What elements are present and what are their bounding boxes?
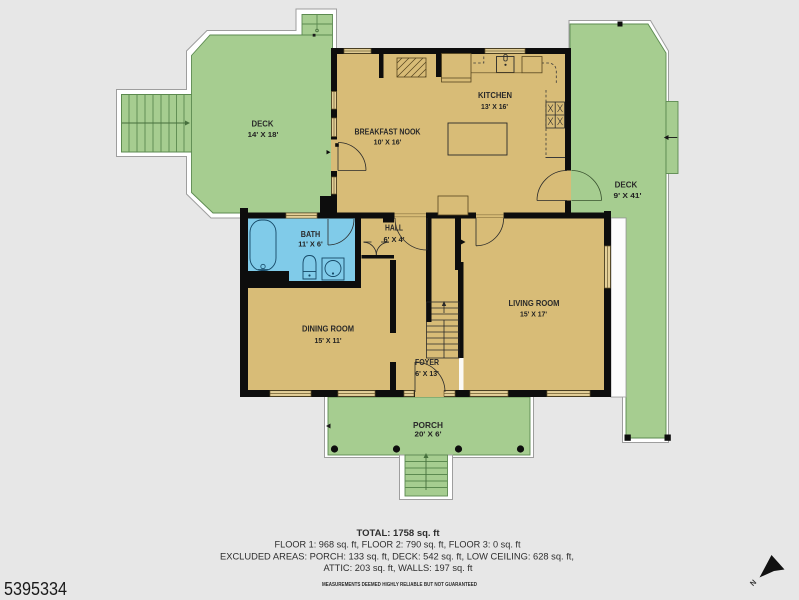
- svg-text:TOTAL: 1758 sq. ft: TOTAL: 1758 sq. ft: [357, 528, 441, 539]
- svg-text:FLOOR 1: 968 sq. ft, FLOOR 2:: FLOOR 1: 968 sq. ft, FLOOR 2: 790 sq. ft…: [275, 540, 521, 551]
- svg-text:14' X 18': 14' X 18': [248, 132, 279, 139]
- svg-text:DECK: DECK: [252, 119, 275, 129]
- svg-text:BATH: BATH: [301, 229, 321, 239]
- svg-text:5395334: 5395334: [4, 579, 67, 599]
- svg-text:ATTIC: 203 sq. ft, WALLS: 197: ATTIC: 203 sq. ft, WALLS: 197 sq. ft: [324, 563, 473, 574]
- svg-text:15' X 17': 15' X 17': [520, 312, 547, 319]
- svg-text:DECK: DECK: [615, 180, 639, 190]
- svg-text:FOYER: FOYER: [415, 357, 439, 367]
- svg-text:10' X 16': 10' X 16': [374, 140, 402, 147]
- svg-text:DINING ROOM: DINING ROOM: [302, 324, 354, 334]
- svg-text:PORCH: PORCH: [413, 420, 443, 430]
- svg-text:BREAKFAST NOOK: BREAKFAST NOOK: [355, 127, 422, 137]
- svg-text:9' X 41': 9' X 41': [614, 193, 642, 200]
- svg-text:KITCHEN: KITCHEN: [478, 90, 512, 100]
- svg-text:11' X 6': 11' X 6': [298, 242, 323, 249]
- svg-text:15' X 11': 15' X 11': [315, 338, 342, 345]
- svg-text:13' X 16': 13' X 16': [481, 104, 508, 111]
- svg-text:HALL: HALL: [385, 223, 403, 233]
- svg-text:20' X 6': 20' X 6': [415, 432, 442, 439]
- svg-text:6' X 13': 6' X 13': [415, 371, 439, 378]
- svg-text:MEASUREMENTS DEEMED HIGHLY REL: MEASUREMENTS DEEMED HIGHLY RELIABLE BUT …: [322, 582, 477, 588]
- svg-text:LIVING ROOM: LIVING ROOM: [509, 298, 560, 308]
- svg-text:EXCLUDED AREAS: PORCH: 133 sq.: EXCLUDED AREAS: PORCH: 133 sq. ft, DECK:…: [220, 551, 574, 562]
- svg-text:6' X 4': 6' X 4': [384, 237, 405, 244]
